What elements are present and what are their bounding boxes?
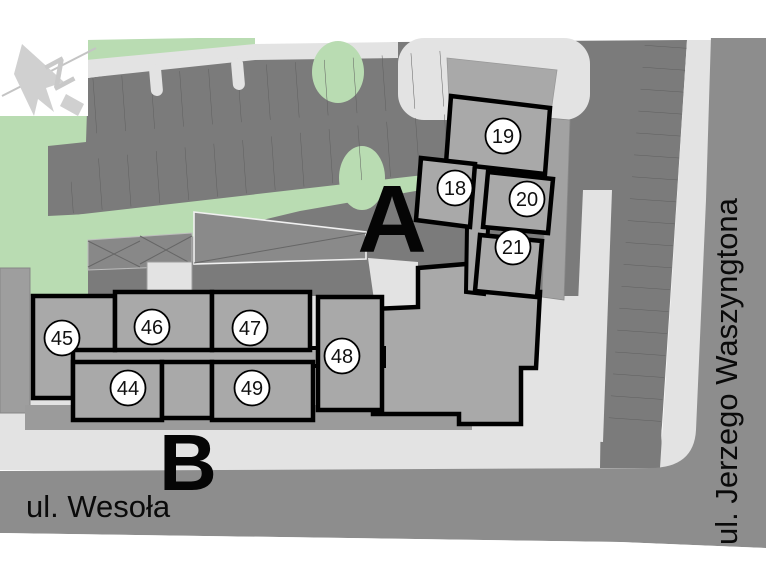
unit-badge-21[interactable]: 21 <box>496 230 531 265</box>
margin-top <box>0 0 772 38</box>
svg-text:44: 44 <box>117 378 139 400</box>
site-plan: Z 18 19 <box>0 0 772 580</box>
svg-text:20: 20 <box>516 189 538 211</box>
svg-text:49: 49 <box>241 378 263 400</box>
unit-badge-45[interactable]: 45 <box>45 321 80 356</box>
unit-badge-18[interactable]: 18 <box>438 171 473 206</box>
unit-mid-block <box>162 362 212 418</box>
site-plan-canvas: Z 18 19 <box>0 0 772 580</box>
svg-text:45: 45 <box>51 328 73 350</box>
unit-badge-48[interactable]: 48 <box>325 339 360 374</box>
adjacent-building <box>0 268 30 413</box>
svg-text:47: 47 <box>239 318 261 340</box>
building-a-label[interactable]: A <box>357 166 426 273</box>
svg-text:18: 18 <box>444 178 466 200</box>
unit-badge-44[interactable]: 44 <box>111 371 146 406</box>
svg-text:48: 48 <box>331 346 353 368</box>
unit-badge-47[interactable]: 47 <box>233 311 268 346</box>
unit-badge-19[interactable]: 19 <box>486 119 521 154</box>
street-label-waszyngtona: ul. Jerzego Waszyngtona <box>709 197 744 545</box>
street-label-wesola: ul. Wesoła <box>26 489 171 524</box>
svg-text:19: 19 <box>492 126 514 148</box>
unit-badge-49[interactable]: 49 <box>235 371 270 406</box>
unit-badge-46[interactable]: 46 <box>135 310 170 345</box>
margin-right <box>766 0 772 580</box>
svg-text:21: 21 <box>502 237 524 259</box>
unit-badge-20[interactable]: 20 <box>510 182 545 217</box>
svg-text:46: 46 <box>141 317 163 339</box>
